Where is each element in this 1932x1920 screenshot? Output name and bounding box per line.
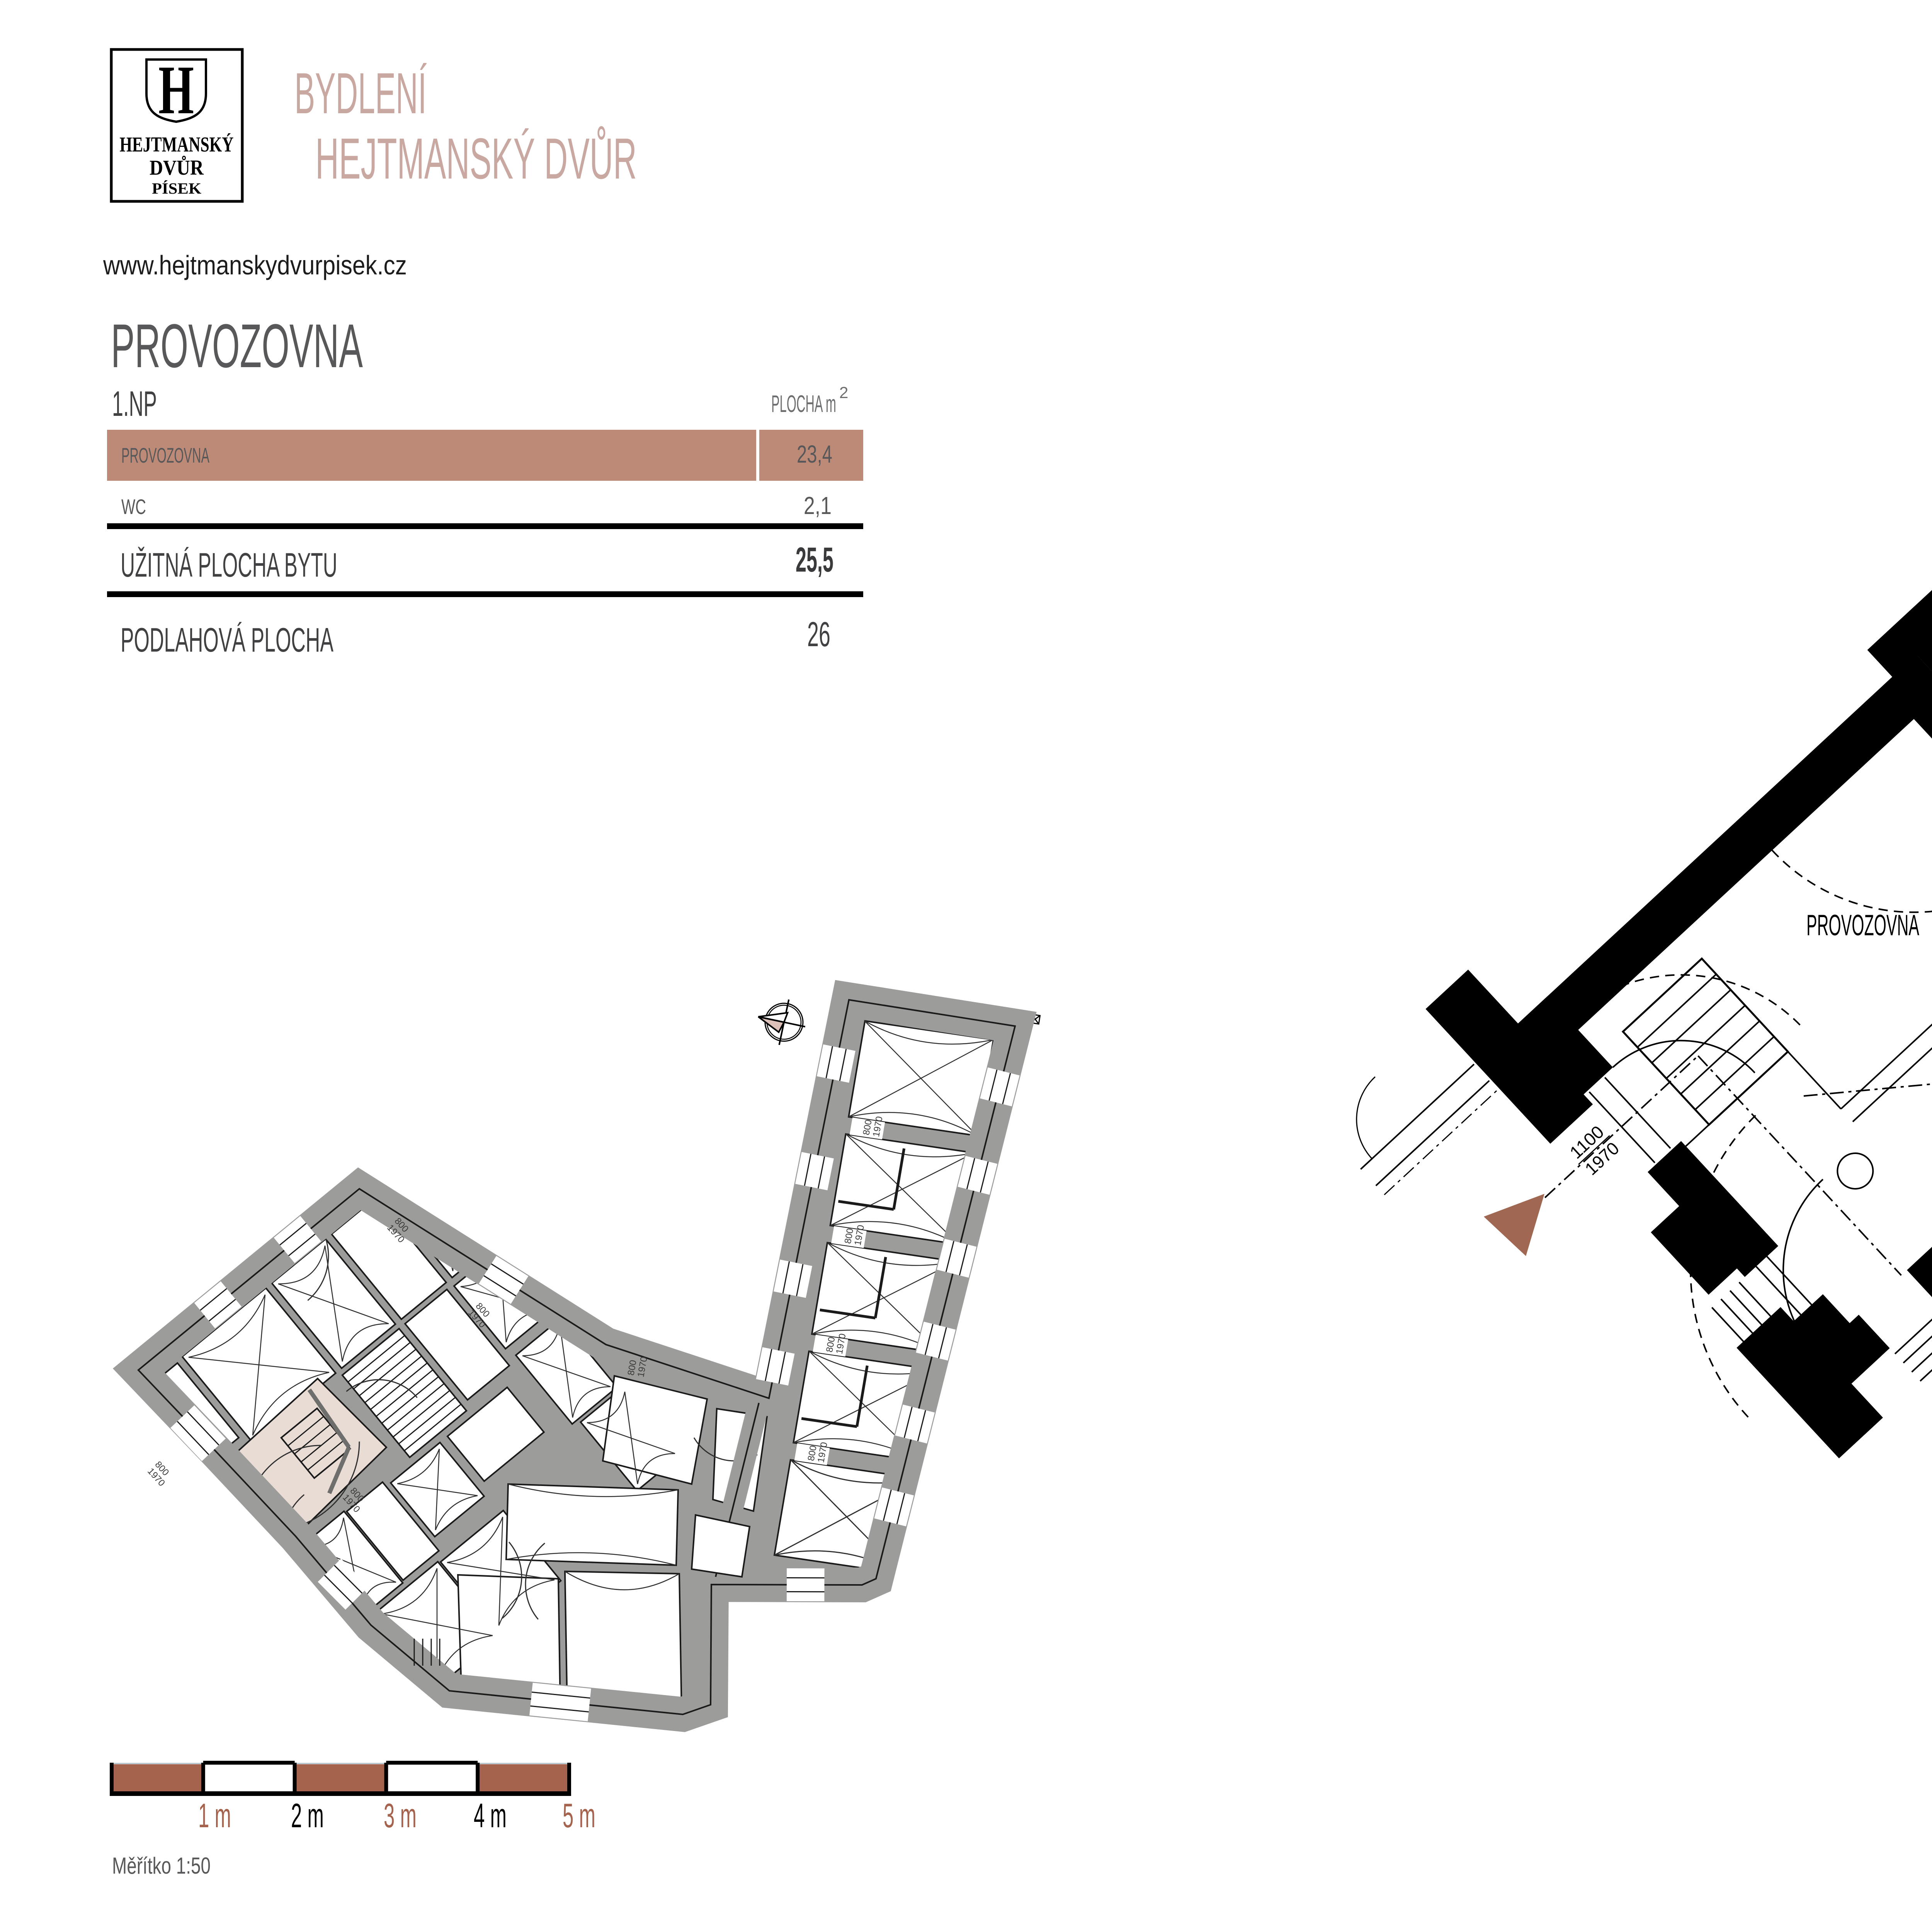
svg-text:PODLAHOVÁ PLOCHA: PODLAHOVÁ PLOCHA	[121, 621, 333, 659]
svg-text:1.NP: 1.NP	[112, 384, 157, 424]
svg-text:23,4: 23,4	[797, 440, 832, 468]
svg-text:2: 2	[839, 383, 848, 402]
svg-text:www.hejtmanskydvurpisek.cz: www.hejtmanskydvurpisek.cz	[103, 250, 407, 280]
svg-text:BYDLENÍ: BYDLENÍ	[294, 61, 427, 126]
svg-text:HEJTMANSKÝ DVŮR: HEJTMANSKÝ DVŮR	[315, 126, 637, 191]
svg-text:UŽITNÁ PLOCHA BYTU: UŽITNÁ PLOCHA BYTU	[121, 546, 337, 584]
svg-text:PÍSEK: PÍSEK	[152, 180, 201, 197]
svg-text:PROVOZOVNA: PROVOZOVNA	[111, 311, 363, 380]
svg-text:PROVOZOVNA: PROVOZOVNA	[1806, 909, 1919, 942]
svg-text:1 m: 1 m	[198, 1796, 231, 1835]
svg-text:Měřítko 1:50: Měřítko 1:50	[112, 1853, 211, 1879]
svg-text:HEJTMANSKÝ: HEJTMANSKÝ	[120, 133, 234, 156]
svg-text:3 m: 3 m	[384, 1796, 417, 1835]
svg-text:WC: WC	[121, 495, 146, 519]
svg-text:H: H	[158, 51, 194, 128]
svg-text:5 m: 5 m	[563, 1796, 595, 1835]
svg-text:PLOCHA m: PLOCHA m	[771, 391, 836, 417]
svg-text:25,5: 25,5	[796, 541, 833, 579]
svg-text:DVŮR: DVŮR	[150, 156, 204, 179]
svg-text:2 m: 2 m	[291, 1796, 324, 1835]
svg-text:PROVOZOVNA: PROVOZOVNA	[121, 443, 209, 467]
svg-text:4 m: 4 m	[474, 1796, 507, 1835]
svg-text:2,1: 2,1	[804, 492, 832, 519]
svg-text:26: 26	[807, 615, 830, 654]
